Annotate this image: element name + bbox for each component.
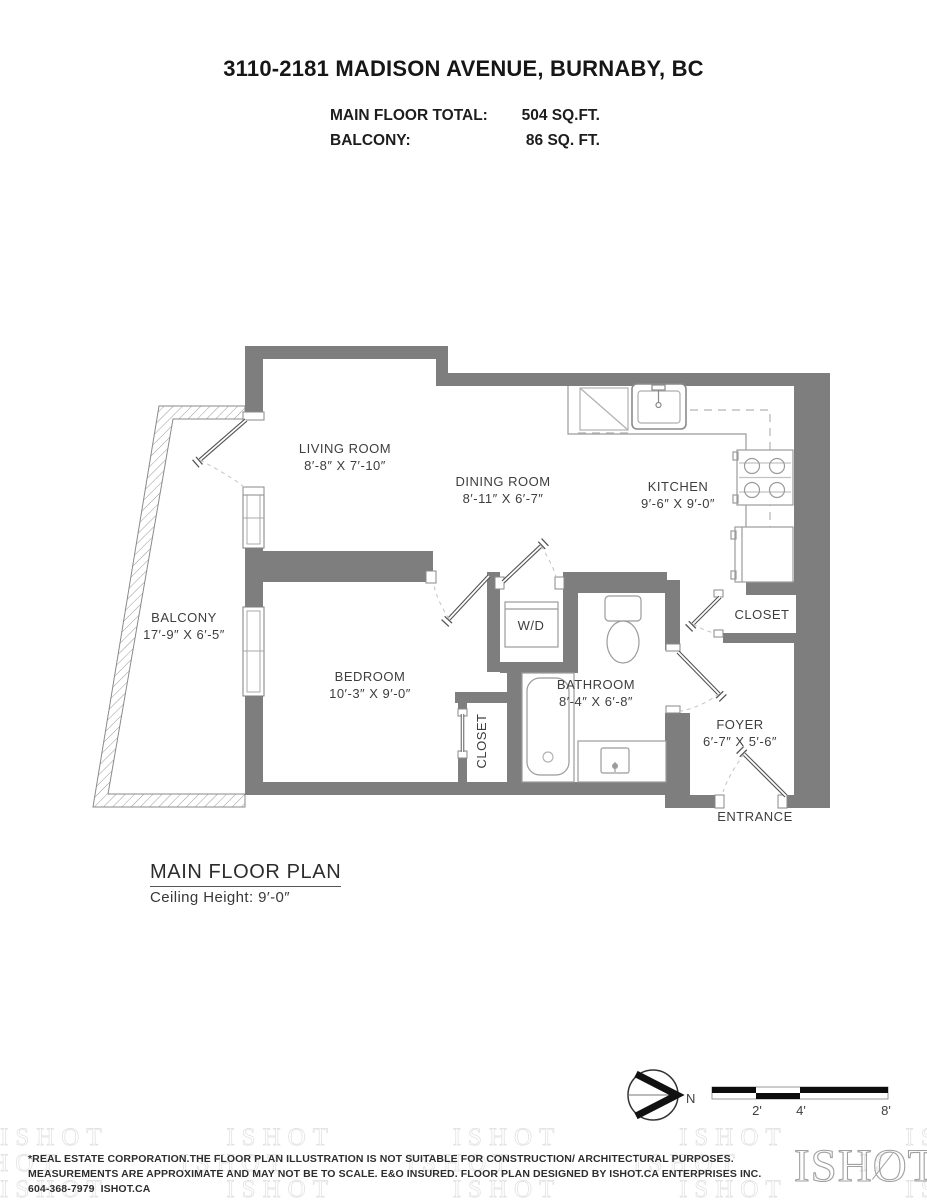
wall-segment [665,795,722,808]
entry-closet-label: CLOSET [734,607,789,622]
dining-room-dims: 8′-11″ X 6′-7″ [463,491,544,506]
wall-segment [245,551,433,582]
living-room-label: LIVING ROOM [299,441,391,456]
dishwasher [578,388,630,433]
balcony-door [200,420,246,487]
wall-segment [245,782,690,795]
wall-segment [458,757,467,782]
kitchen-label: KITCHEN [648,479,709,494]
balcony-dims: 17′-9″ X 6′-5″ [143,627,225,642]
plan-heading: MAIN FLOOR PLAN Ceiling Height: 9′-0″ [150,861,341,906]
vanity-sink [578,741,666,782]
door-jamb [426,571,436,583]
door-jamb [666,644,680,651]
ishot-logo: ISHOT [794,1141,927,1191]
kitchen-sink [632,384,686,429]
bedroom-closet-label: CLOSET [474,713,489,768]
disclaimer-line-1: *REAL ESTATE CORPORATION.THE FLOOR PLAN … [28,1152,761,1167]
foyer-dims: 6′-7″ X 5′-6″ [703,734,777,749]
compass: N [628,1070,695,1120]
wall-segment [723,633,796,643]
door-jamb [458,751,467,758]
entrance-door [723,754,786,796]
wall-segment [455,692,507,703]
plan-heading-ceiling: Ceiling Height: 9′-0″ [150,889,341,906]
bathroom-dims: 8′-4″ X 6′-8″ [559,694,633,709]
foyer-label: FOYER [716,717,763,732]
compass-north-label: N [686,1091,695,1106]
living-room-dims: 8′-8″ X 7′-10″ [304,458,386,473]
scale-bar-segment [756,1093,800,1099]
fridge [731,527,793,582]
wall-segment [563,572,667,593]
watermark-row: ISHOT ISHOT ISHOT ISHOT ISHOT ISHOT ISHO… [0,1124,927,1151]
wall-segment [746,581,830,595]
wall-segment [436,373,830,386]
plan-heading-title: MAIN FLOOR PLAN [150,861,341,887]
bedroom-label: BEDROOM [335,669,406,684]
living-room-window [243,489,264,548]
scale-tick-4ft: 4' [796,1103,806,1118]
balcony-wall-hatched [93,406,245,807]
wall-segment [245,693,263,795]
wall-segment [796,595,830,635]
kitchen-dims: 9′-6″ X 9′-0″ [641,496,715,511]
disclaimer-footer: *REAL ESTATE CORPORATION.THE FLOOR PLAN … [28,1152,761,1197]
door-jamb [714,630,723,637]
wall-segment [507,662,522,782]
entrance-label: ENTRANCE [717,809,793,824]
stove [733,450,793,505]
hall-door [503,546,556,582]
bedroom-window [243,607,264,696]
door-jamb [666,706,680,713]
scale-bar-segment [712,1087,756,1093]
scale-bar-segment [800,1087,888,1093]
disclaimer-line-2: MEASUREMENTS ARE APPROXIMATE AND MAY NOT… [28,1167,761,1182]
door-jamb [778,795,787,808]
scale-tick-8ft: 8' [881,1103,891,1118]
wall-segment [786,795,830,808]
wall-segment [665,713,690,795]
door-jamb [243,487,264,495]
door-jamb [555,577,564,589]
floor-plan-svg: LIVING ROOM 8′-8″ X 7′-10″ DINING ROOM 8… [0,0,927,1200]
dining-room-label: DINING ROOM [455,474,550,489]
floor-plan-page: 3110-2181 MADISON AVENUE, BURNABY, BC MA… [0,0,927,1200]
door-jamb [495,577,504,589]
wall-segment [794,635,830,808]
bathroom-label: BATHROOM [557,677,635,692]
wall-segment [245,346,263,420]
wall-segment [245,346,448,359]
wall-segment [794,386,830,581]
door-jamb [715,795,724,808]
disclaimer-line-3: 604-368-7979 ISHOT.CA [28,1182,761,1197]
door-jamb [243,412,264,420]
toilet [605,596,641,663]
balcony-label: BALCONY [151,610,217,625]
bedroom-door [434,576,489,619]
wall-segment [665,580,680,650]
bathroom-door [678,652,719,711]
ishot-logo-text: ISHOT [794,1140,927,1192]
room-labels: LIVING ROOM 8′-8″ X 7′-10″ DINING ROOM 8… [143,441,793,824]
entry-closet-door [693,597,720,633]
scale-bar: 2' 4' 8' [712,1087,891,1118]
wd-label: W/D [518,618,545,633]
scale-tick-2ft: 2' [752,1103,762,1118]
bedroom-dims: 10′-3″ X 9′-0″ [329,686,411,701]
